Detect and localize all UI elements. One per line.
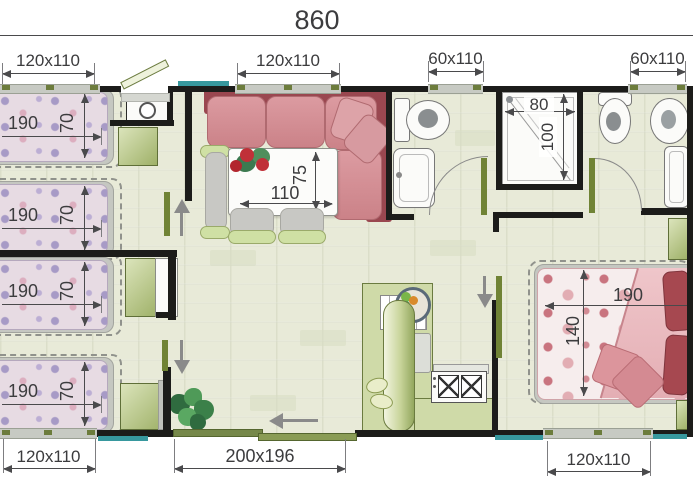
dim-arrow — [580, 270, 588, 279]
dim-tick — [339, 63, 340, 84]
wall-top — [0, 86, 693, 92]
flower — [256, 158, 269, 171]
sofa-cushion — [266, 96, 325, 148]
bed-length-dimension — [2, 136, 100, 137]
window-mullion — [473, 85, 481, 90]
window-dim-bottom-right: 120x110 — [545, 448, 652, 482]
shower-width-label: 80 — [524, 96, 554, 114]
bed-length-label: 190 — [4, 206, 42, 224]
overall-width-dimension — [0, 35, 693, 36]
dim-arrow — [81, 186, 89, 195]
bed-length-label: 190 — [4, 282, 42, 300]
dim-arrow — [560, 171, 568, 180]
dim-arrow — [81, 417, 89, 426]
dim-line — [2, 73, 94, 74]
wall-under-shower-stub — [493, 218, 499, 232]
window-dim-label: 60x110 — [418, 50, 493, 68]
dim-tick — [3, 439, 4, 473]
window-glass-bottom-1 — [98, 436, 148, 441]
window-dim-label: 120x110 — [545, 451, 652, 469]
window-glass-bottom-3 — [653, 434, 687, 439]
leaf — [190, 414, 206, 430]
dim-line — [174, 468, 346, 469]
window-mullion — [44, 430, 52, 435]
bed-length-label: 190 — [4, 382, 42, 400]
sliding-door-panel-1 — [173, 429, 263, 437]
arrow-kids-room-2-head — [174, 360, 190, 374]
dim-tick — [685, 61, 686, 82]
single-bed-2: 190 70 — [0, 184, 130, 252]
wall-kids-divider — [0, 250, 177, 257]
bed-width-label: 70 — [58, 376, 76, 406]
dim-arrow — [81, 362, 89, 371]
double-bed-width-label: 140 — [564, 311, 582, 351]
wall-bath1-left — [386, 86, 392, 220]
entry-arrow-up — [180, 212, 183, 236]
dim-arrow — [3, 465, 12, 473]
double-bed-length-dimension — [545, 305, 689, 306]
dim-tick — [483, 61, 484, 82]
kitchen-counter-lower — [414, 398, 498, 432]
dim-arrow — [428, 68, 437, 76]
dim-arrow — [545, 302, 554, 310]
window-mullion — [677, 85, 685, 90]
chair-left-bench — [205, 152, 227, 230]
wall-under-shower — [493, 212, 583, 218]
patio-door-dim: 200x196 — [173, 444, 347, 478]
table-width-label: 75 — [291, 160, 309, 190]
floor-tile-patch — [250, 395, 296, 411]
double-bed-length-label: 190 — [608, 286, 648, 304]
entry-arrow-up-head — [174, 199, 190, 213]
arrow-master-room-head — [477, 294, 493, 308]
chair-back — [200, 226, 230, 239]
shower-depth-label: 100 — [539, 117, 557, 157]
toilet-1-seat — [418, 109, 438, 128]
wall-shower-bottom — [496, 184, 583, 190]
floor-tile-patch — [430, 240, 476, 256]
wall-shower-right — [577, 86, 583, 190]
stove-burner-2 — [461, 375, 482, 398]
dim-tick — [345, 439, 346, 473]
window-dim-label: 120x110 — [0, 448, 97, 466]
bed-length-dimension — [2, 404, 100, 405]
vanity-unit-inner — [669, 151, 684, 203]
dim-arrow — [324, 200, 333, 208]
dim-arrow — [580, 387, 588, 396]
dim-tick — [2, 63, 3, 84]
flower-centerpiece — [228, 144, 276, 182]
dim-line — [3, 468, 95, 469]
stove-knob — [433, 385, 436, 388]
dim-arrow — [237, 70, 246, 78]
wall-bath1-bottom-stub — [386, 214, 414, 220]
dim-arrow — [2, 70, 11, 78]
arrow-master-room — [483, 276, 486, 296]
dim-tick — [237, 63, 238, 84]
door-panel-bath2 — [589, 158, 595, 213]
bed-length-dimension — [2, 228, 100, 229]
stove-knob — [433, 377, 436, 380]
bed-length-dimension — [2, 304, 100, 305]
kitchen-island — [383, 300, 415, 432]
cabinet-kids-room-1 — [118, 127, 158, 166]
dim-tick — [94, 63, 95, 84]
washbasin-1-inner — [399, 154, 429, 202]
washbasin-1-drain — [396, 172, 402, 178]
arrow-kids-room-2 — [180, 340, 183, 362]
sofa-cushion — [207, 96, 266, 148]
stove-burner-1 — [438, 375, 459, 398]
floor-plan-canvas: 190 70 190 70 190 70 — [0, 0, 693, 500]
cabinet-kids-room-2 — [125, 258, 159, 317]
dim-arrow — [81, 94, 89, 103]
shower-depth-dimension — [563, 94, 564, 180]
door-panel-kids-room-2 — [162, 340, 168, 371]
dim-tick — [101, 128, 102, 145]
dim-tick — [95, 439, 96, 473]
floor-plant — [170, 388, 216, 434]
window-mullion — [594, 430, 602, 435]
dim-arrow — [81, 149, 89, 158]
bed-width-label: 70 — [58, 276, 76, 306]
dim-arrow — [312, 152, 320, 161]
dim-line — [547, 471, 650, 472]
toilet-2-seat — [606, 112, 621, 131]
window-dim-bottom-left: 120x110 — [0, 445, 97, 479]
entry-threshold — [121, 93, 170, 102]
window-mullion — [643, 430, 651, 435]
bed-length-label: 190 — [4, 114, 42, 132]
arrow-patio — [282, 419, 318, 422]
dim-tick — [630, 61, 631, 82]
dim-tick — [101, 220, 102, 237]
dim-tick — [547, 441, 548, 476]
dim-arrow — [630, 68, 639, 76]
floor-tile-patch — [300, 330, 346, 346]
single-bed-3: 190 70 — [0, 260, 130, 328]
double-bed: 190 140 — [528, 260, 693, 404]
dim-tick — [174, 439, 175, 473]
sofa-chaise-cushion — [332, 150, 382, 220]
sliding-door-panel-2 — [258, 433, 357, 441]
bed-width-label: 70 — [58, 108, 76, 138]
window-glass-bottom-2 — [495, 435, 543, 440]
door-panel-master — [496, 276, 502, 358]
arrow-patio-head — [269, 413, 283, 429]
floor-tile-patch — [210, 250, 256, 266]
window-mullion — [2, 430, 10, 435]
dim-arrow — [174, 465, 183, 473]
dim-arrow — [240, 200, 249, 208]
window-mullion — [630, 85, 638, 90]
flower — [230, 160, 242, 172]
floor-tile-patch — [455, 130, 495, 146]
dim-arrow — [81, 241, 89, 250]
double-bed-width-dimension — [583, 270, 584, 396]
wall-kids-room2-right — [163, 367, 171, 430]
dim-tick — [650, 441, 651, 476]
dim-tick — [101, 296, 102, 313]
dim-line — [237, 73, 339, 74]
window-dim-bath2: 60x110 — [628, 48, 687, 84]
window-mullion — [87, 430, 95, 435]
wall-closet-bottom — [110, 120, 174, 126]
wall-kids-divider-stub — [168, 250, 176, 320]
window-mullion — [545, 430, 553, 435]
wardrobe-cabinet-1 — [668, 218, 689, 260]
single-bed-1: 190 70 — [0, 92, 130, 160]
dim-arrow — [81, 262, 89, 271]
round-sink-drain — [661, 110, 676, 129]
wall-bath2-bottom — [641, 208, 693, 215]
chair-back — [228, 230, 276, 244]
dim-tick — [101, 396, 102, 413]
overall-width-label: 860 — [287, 6, 347, 34]
wall-kids-divider-stub-b — [156, 312, 176, 318]
wall-shower-left — [496, 86, 502, 190]
dim-arrow — [560, 94, 568, 103]
wall-right — [687, 86, 693, 437]
door-panel-bath1 — [481, 158, 487, 215]
window-mullion — [430, 85, 438, 90]
dim-arrow — [566, 108, 575, 116]
chair-back — [278, 230, 326, 244]
bed-width-label: 70 — [58, 200, 76, 230]
flower — [240, 148, 254, 162]
dim-arrow — [547, 468, 556, 476]
window-dim-label: 120x110 — [0, 52, 96, 70]
patio-door-dim-label: 200x196 — [173, 447, 347, 465]
window-dim-bath1: 60x110 — [426, 48, 485, 84]
shower-head-icon — [506, 96, 513, 103]
window-dim-top-left: 120x110 — [0, 50, 96, 86]
wall-hall — [185, 86, 192, 201]
single-bed-4: 190 70 — [0, 360, 130, 428]
door-panel-kids-room-1 — [164, 192, 170, 236]
dim-arrow — [505, 108, 514, 116]
dim-tick — [428, 61, 429, 82]
window-glass-top — [178, 81, 229, 86]
window-dim-top-center: 120x110 — [235, 50, 341, 86]
dim-arrow — [81, 317, 89, 326]
window-dim-label: 120x110 — [235, 52, 341, 70]
washing-machine-drum-icon — [139, 102, 156, 119]
